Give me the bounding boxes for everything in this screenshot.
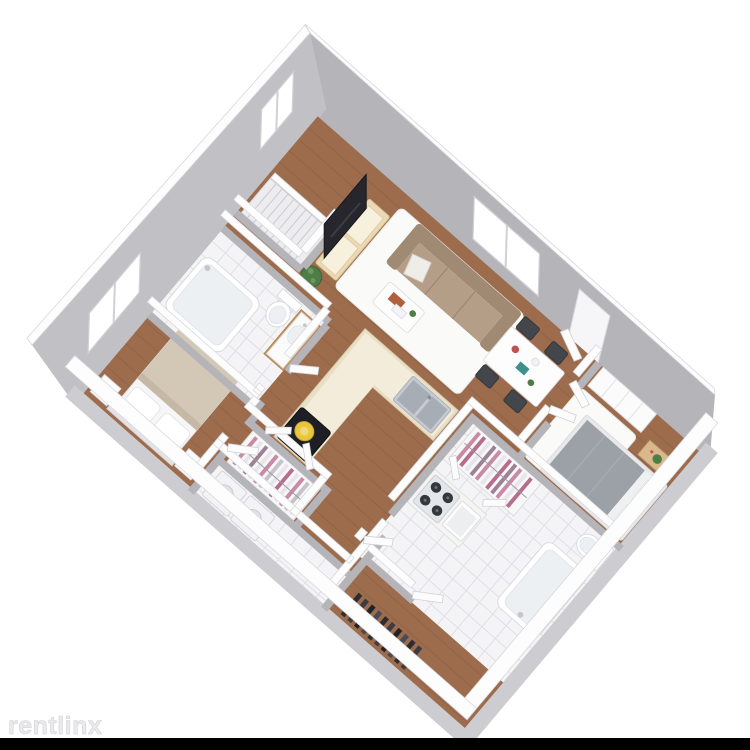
- bottom-black-bar: [0, 738, 750, 750]
- floor-plan-3d: rentlinx: [0, 0, 750, 750]
- floor-plan-image: rentlinx: [0, 0, 750, 750]
- watermark: rentlinx: [8, 712, 102, 740]
